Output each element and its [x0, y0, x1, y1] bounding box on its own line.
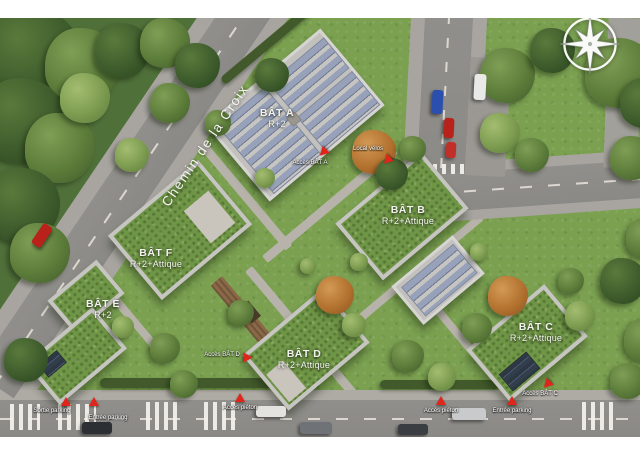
tree — [400, 136, 426, 162]
tree — [610, 363, 640, 399]
building-floors: R+2 — [217, 119, 337, 129]
car — [431, 90, 443, 115]
van — [473, 74, 486, 101]
access-marker-label: Local vélos — [353, 146, 383, 153]
tree — [228, 300, 254, 326]
building-label-bat-d: BÂT D R+2+Attique — [244, 348, 364, 370]
solar-panels — [499, 351, 541, 391]
car — [300, 422, 332, 434]
tree — [4, 338, 48, 382]
inner-courtyard — [184, 191, 236, 244]
car — [82, 422, 112, 434]
tree — [376, 158, 408, 190]
tree — [610, 136, 640, 180]
building-name: BÂT C — [476, 321, 596, 333]
building-name: BÂT F — [96, 247, 216, 259]
tree — [170, 370, 198, 398]
access-marker-label: Entrée parking — [492, 408, 531, 415]
building-floors: R+2 — [43, 310, 163, 320]
tree — [150, 83, 190, 123]
building-label-bat-f: BÂT F R+2+Attique — [96, 247, 216, 269]
crosswalk — [582, 402, 614, 430]
building-label-bat-b: BÂT B R+2+Attique — [348, 204, 468, 226]
tree — [624, 318, 640, 362]
tree — [480, 113, 520, 153]
bush — [300, 258, 316, 274]
tree — [428, 363, 456, 391]
tree — [392, 340, 424, 372]
access-marker-icon — [235, 393, 245, 402]
tree — [60, 73, 110, 123]
car — [398, 424, 428, 435]
car — [256, 406, 286, 417]
access-marker-icon — [61, 397, 71, 406]
building-name: BÂT B — [348, 204, 468, 216]
access-marker-icon — [436, 396, 446, 405]
building-floors: R+2+Attique — [476, 333, 596, 343]
access-marker-icon — [89, 397, 99, 406]
tree — [175, 43, 220, 88]
compass-rose-icon — [558, 18, 622, 76]
access-marker-label: Accès piéton — [223, 405, 257, 412]
building-floors: R+2+Attique — [96, 259, 216, 269]
page: Chemin de la Croix BÂT A R+2 BÂT B R+2+A… — [0, 0, 640, 470]
tree — [558, 268, 584, 294]
access-marker-label: Accès BÂT D — [204, 352, 240, 359]
autumn-tree — [316, 276, 354, 314]
access-marker-label: Accès piéton — [424, 408, 458, 415]
building-label-bat-c: BÂT C R+2+Attique — [476, 321, 596, 343]
building-floors: R+2+Attique — [348, 216, 468, 226]
building-name: BÂT E — [43, 298, 163, 310]
access-marker-label: Accès BÂT C — [522, 391, 558, 398]
access-marker-label: Entrée parking — [88, 415, 127, 422]
access-marker-label: Sortie parking — [33, 408, 70, 415]
bush — [470, 243, 488, 261]
building-label-bat-e: BÂT E R+2 — [43, 298, 163, 320]
building-floors: R+2+Attique — [244, 360, 364, 370]
site-plan-aerial-view: Chemin de la Croix BÂT A R+2 BÂT B R+2+A… — [0, 18, 640, 437]
bush — [342, 313, 366, 337]
tree — [600, 258, 640, 304]
tree — [515, 138, 549, 172]
car — [446, 142, 457, 159]
car — [443, 118, 454, 138]
access-marker-icon — [507, 396, 517, 405]
bush — [115, 138, 149, 172]
autumn-tree — [488, 276, 528, 316]
tree — [150, 333, 180, 363]
bush — [350, 253, 368, 271]
tree — [626, 218, 640, 258]
bush — [255, 168, 275, 188]
access-marker-label: Accès BÂT A — [293, 160, 328, 167]
crosswalk — [146, 402, 180, 430]
tree — [480, 48, 535, 103]
building-name: BÂT D — [244, 348, 364, 360]
access-marker-icon — [244, 353, 253, 363]
